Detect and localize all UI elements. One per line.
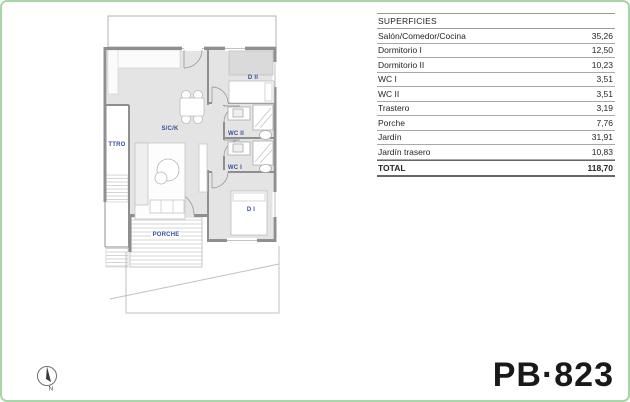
table-total-row: TOTAL 118,70 xyxy=(377,160,615,178)
trastero-and-stairs xyxy=(106,106,128,267)
row-label: Jardín trasero xyxy=(378,147,430,157)
sofa-and-coffee-table xyxy=(135,143,185,219)
table-row: Jardín trasero 10,83 xyxy=(377,145,615,160)
table-row: Dormitorio I 12,50 xyxy=(377,44,615,59)
row-label: WC II xyxy=(378,89,399,99)
row-value: 7,76 xyxy=(596,118,613,128)
garden-diagonal-line xyxy=(110,264,279,299)
room-label-wc2: WC II xyxy=(214,131,258,138)
north-letter: N xyxy=(49,386,54,393)
room-label-trastero: TTRO xyxy=(95,142,139,149)
table-row: WC I 3,51 xyxy=(377,73,615,88)
table-row: Jardín 31,91 xyxy=(377,131,615,146)
row-value: 3,19 xyxy=(596,103,613,113)
total-label: TOTAL xyxy=(378,163,406,173)
room-label-dormitorio1: D I xyxy=(229,207,273,214)
row-label: Dormitorio I xyxy=(378,45,422,55)
room-label-wc1: WC I xyxy=(213,165,257,172)
north-compass-icon: N xyxy=(38,367,57,393)
row-value: 3,51 xyxy=(596,74,613,84)
room-label-porche: PORCHE xyxy=(144,232,188,239)
surfaces-table: SUPERFICIES Salón/Comedor/Cocina 35,26 D… xyxy=(377,13,615,177)
row-value: 10,23 xyxy=(592,60,613,70)
surfaces-table-header: SUPERFICIES xyxy=(377,13,615,29)
row-label: Salón/Comedor/Cocina xyxy=(378,31,466,41)
table-row: Trastero 3,19 xyxy=(377,102,615,117)
kitchen-divider xyxy=(199,144,207,192)
porch-area xyxy=(130,217,202,267)
table-row: Salón/Comedor/Cocina 35,26 xyxy=(377,29,615,44)
row-label: Porche xyxy=(378,118,405,128)
row-value: 10,83 xyxy=(592,147,613,157)
row-label: WC I xyxy=(378,74,397,84)
exterior-steps-hatch xyxy=(106,247,128,267)
table-row: Dormitorio II 10,23 xyxy=(377,58,615,73)
plan-code: PB·823 xyxy=(493,356,614,395)
row-label: Dormitorio II xyxy=(378,60,424,70)
row-label: Jardín xyxy=(378,132,402,142)
table-row: WC II 3,51 xyxy=(377,87,615,102)
row-value: 12,50 xyxy=(592,45,613,55)
room-label-living: S/C/K xyxy=(148,126,192,133)
total-value: 118,70 xyxy=(587,163,613,173)
row-value: 35,26 xyxy=(592,31,613,41)
row-label: Trastero xyxy=(378,103,409,113)
terrace-outline xyxy=(108,16,276,47)
floor-plan-sheet: N S/C/K TTRO D II WC II WC I D I PORCHE … xyxy=(0,0,630,402)
row-value: 3,51 xyxy=(596,89,613,99)
room-label-dormitorio2: D II xyxy=(231,75,275,82)
table-row: Porche 7,76 xyxy=(377,116,615,131)
row-value: 31,91 xyxy=(592,132,613,142)
stairs-hatch xyxy=(106,175,128,202)
